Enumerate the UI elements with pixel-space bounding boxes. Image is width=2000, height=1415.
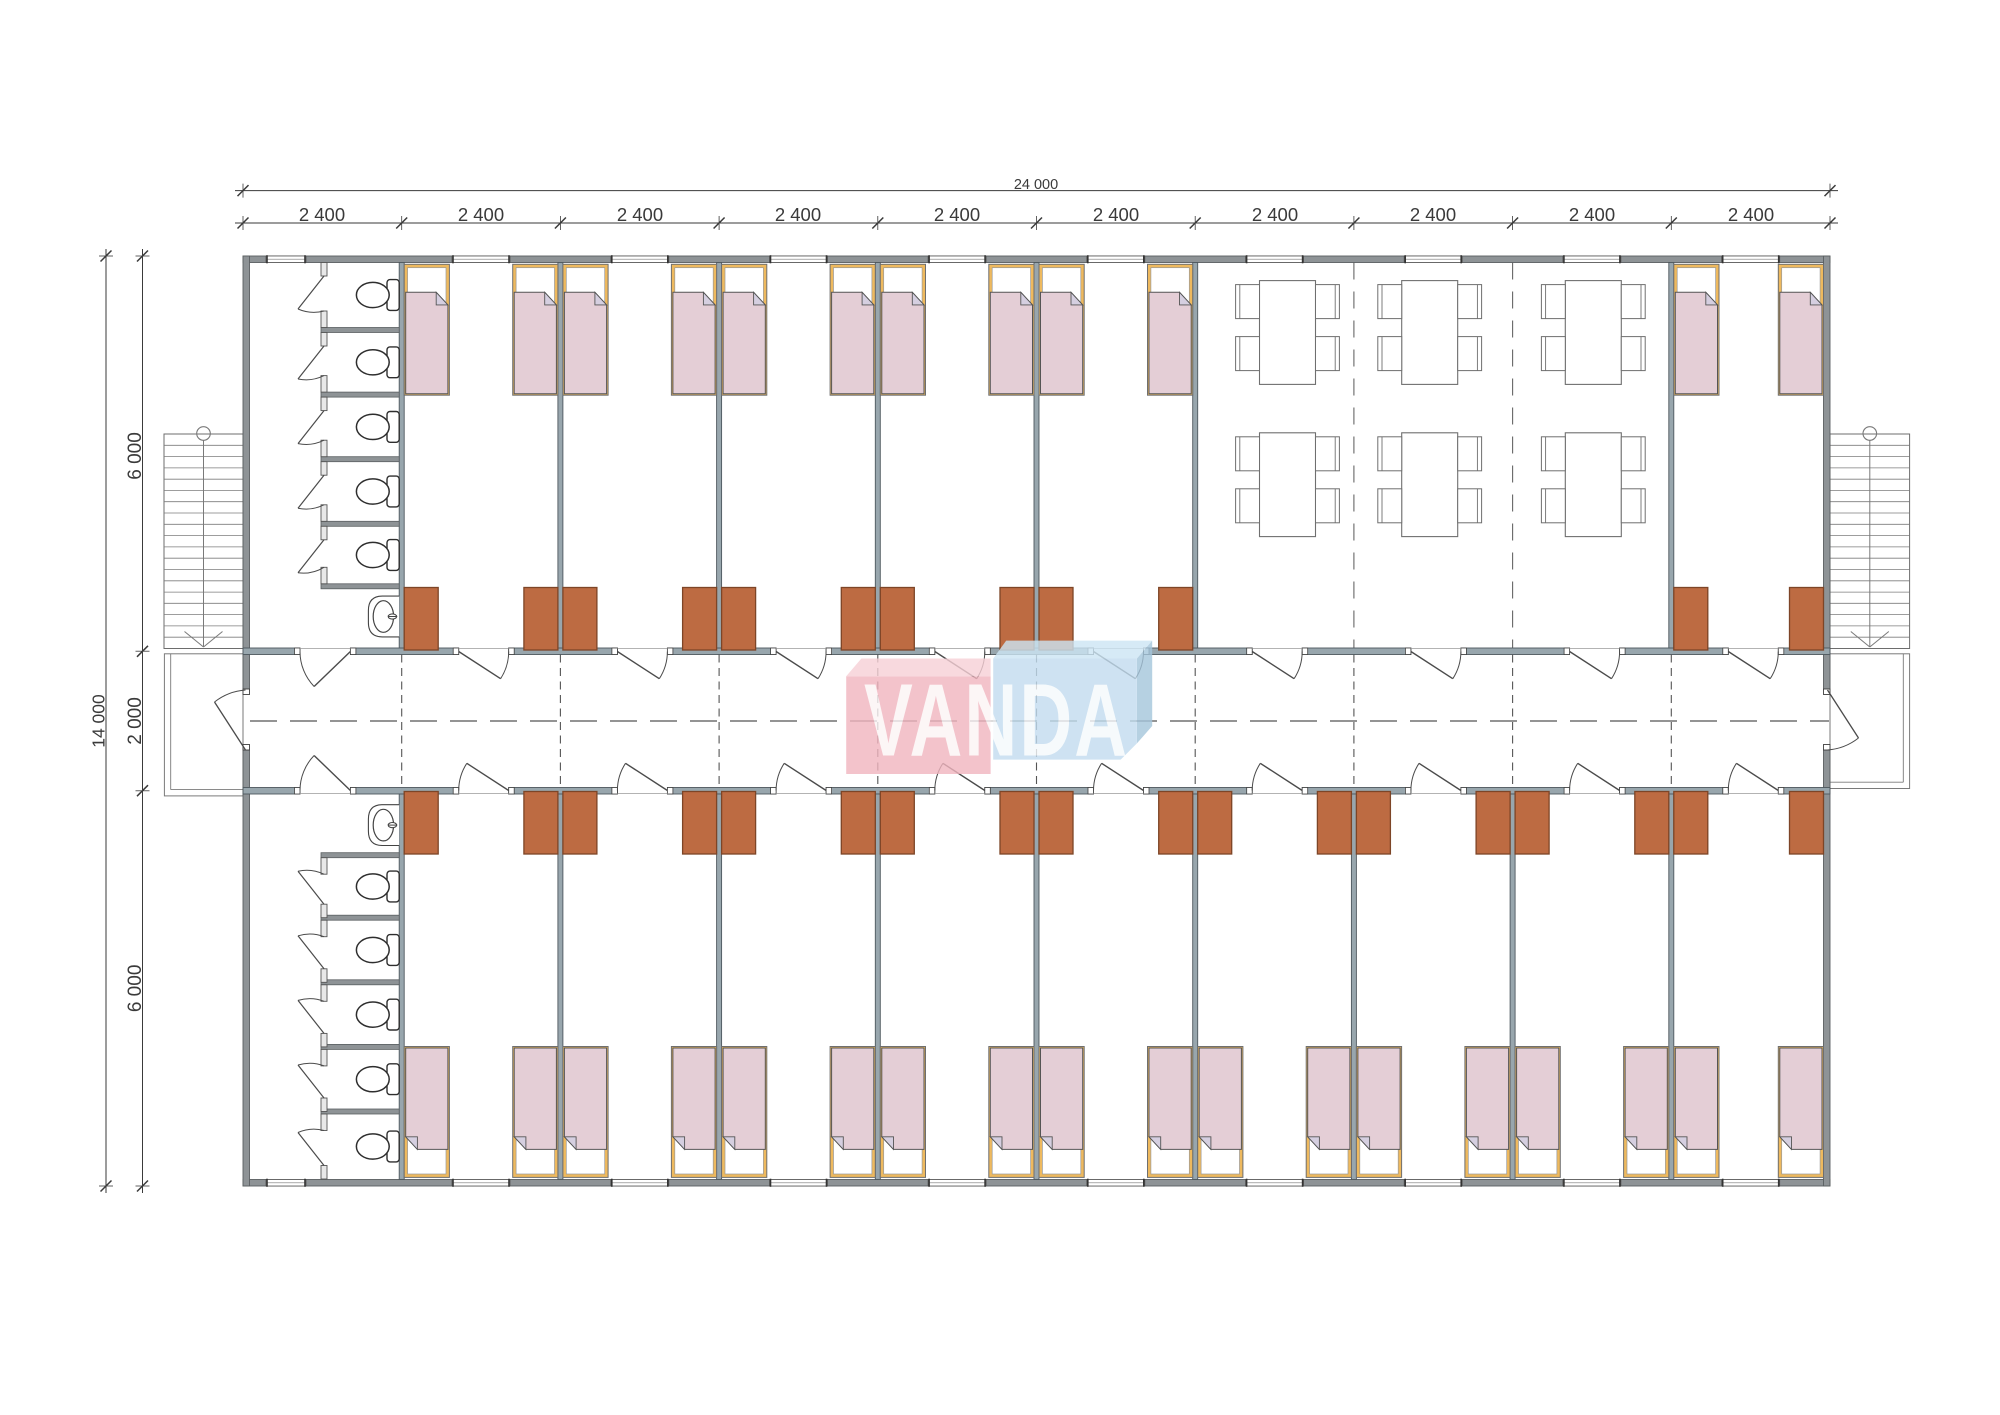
svg-text:2 400: 2 400 [1093, 204, 1139, 225]
svg-text:2 000: 2 000 [125, 697, 146, 745]
svg-text:6 000: 6 000 [125, 965, 146, 1013]
svg-text:2 400: 2 400 [299, 204, 345, 225]
svg-text:2 400: 2 400 [458, 204, 504, 225]
svg-text:2 400: 2 400 [1728, 204, 1774, 225]
svg-text:14 000: 14 000 [89, 694, 109, 748]
svg-text:2 400: 2 400 [1410, 204, 1456, 225]
svg-text:24 000: 24 000 [1014, 177, 1058, 193]
svg-text:VANDA: VANDA [864, 662, 1129, 777]
svg-text:2 400: 2 400 [617, 204, 663, 225]
svg-text:2 400: 2 400 [775, 204, 821, 225]
svg-text:2 400: 2 400 [1252, 204, 1298, 225]
svg-text:2 400: 2 400 [934, 204, 980, 225]
svg-text:6 000: 6 000 [125, 432, 146, 480]
svg-text:2 400: 2 400 [1569, 204, 1615, 225]
